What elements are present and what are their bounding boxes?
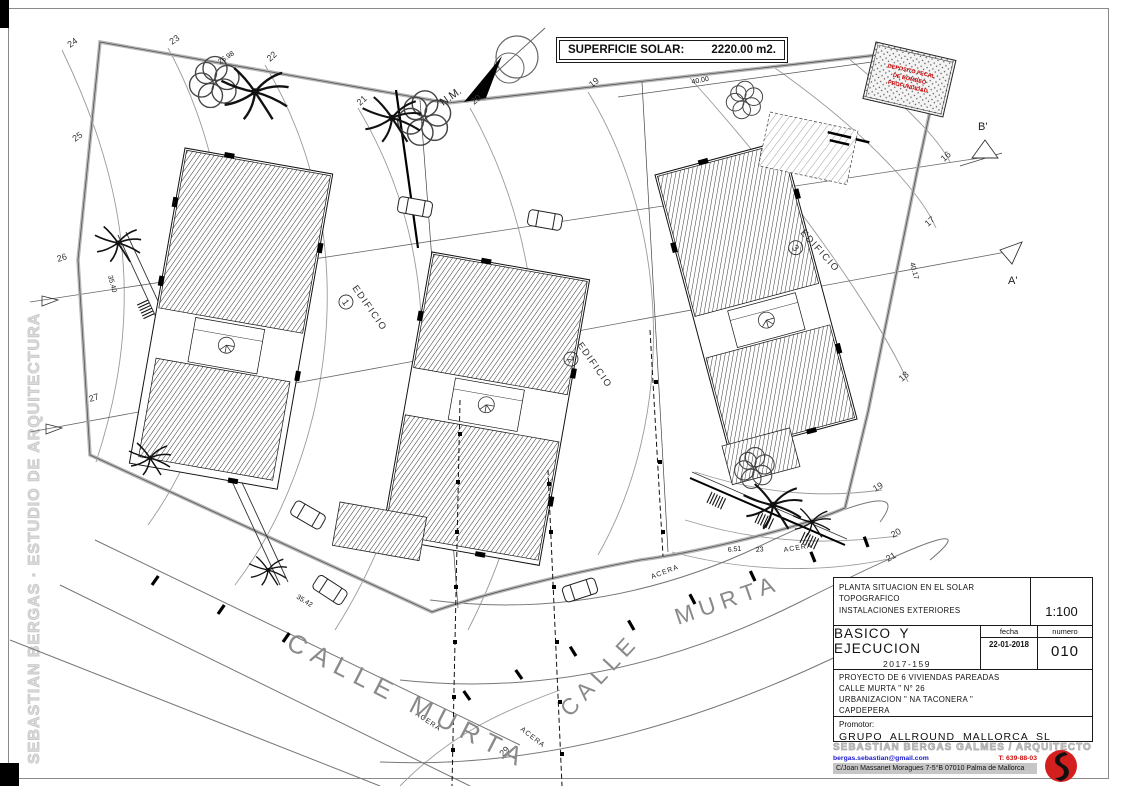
promotor-label: Promotor: — [839, 720, 1087, 729]
dimension-label: 23 — [755, 546, 764, 554]
architect-stamp: SEBASTIAN BERGAS GALMES / ARQUITECTO ber… — [833, 742, 1095, 784]
dimension-label: 35.40 — [106, 275, 117, 294]
acera-label: ACERA — [783, 543, 813, 554]
architect-email: bergas.sebastian@gmail.com — [833, 755, 929, 762]
drawing-sheet: SEBASTIAN BERGAS · ESTUDIO DE ARQUITECTU… — [0, 0, 1125, 786]
contour-label: 27 — [88, 391, 101, 404]
dimension-label: 6.51 — [727, 546, 741, 554]
dimension-label: 35.42 — [295, 594, 314, 609]
contour-label: 25 — [70, 130, 84, 144]
architect-address: C/Joan Massanet Moragues 7-5°B 07010 Pal… — [833, 763, 1037, 774]
project-line: URBANIZACION " NA TACONERA " — [839, 695, 1087, 706]
contour-label: 26 — [56, 251, 69, 264]
north-compass-icon: N.M. — [438, 28, 545, 108]
title-block-project-row: PROYECTO DE 6 VIVIENDAS PAREADAS CALLE M… — [834, 670, 1092, 717]
building-2-label: EDIFICIO — [575, 340, 615, 390]
drawing-title-line: INSTALACIONES EXTERIORES — [839, 605, 1025, 616]
contour-label: 16 — [939, 149, 953, 163]
contour-label: 17 — [923, 214, 937, 228]
title-block: PLANTA SITUACION EN EL SOLAR TOPOGRAFICO… — [833, 577, 1093, 742]
fecha-label: fecha — [981, 626, 1037, 638]
street-name-murta: MURTA — [671, 569, 783, 629]
section-label-b: B' — [978, 121, 987, 133]
north-label: N.M. — [438, 85, 464, 108]
numero-label: numero — [1038, 626, 1092, 638]
project-line: PROYECTO DE 6 VIVIENDAS PAREADAS — [839, 673, 1087, 684]
architect-phone: T: 639-88-03 — [998, 755, 1037, 762]
contour-label: 19 — [871, 480, 885, 494]
contour-label: 21 — [884, 550, 898, 564]
contour-label: 22 — [265, 49, 279, 63]
project-line: CAPDEPERA — [839, 706, 1087, 717]
contour-label: 23 — [167, 33, 181, 47]
section-marker-a: A' — [1000, 242, 1022, 287]
street-name-calle: CALLE — [555, 628, 644, 721]
project-line: CALLE MURTA " N° 26 — [839, 684, 1087, 695]
contour-label: 24 — [65, 36, 79, 50]
title-block-phase-row: BASICO Y EJECUCION 2017-159 fecha 22-01-… — [834, 626, 1092, 670]
deposit-box: DEPOSITO FECAL DE BOMBEO PROFUNDIDAD — [863, 42, 956, 117]
drawing-title-line: PLANTA SITUACION EN EL SOLAR — [839, 582, 1025, 593]
drawing-title-line: TOPOGRAFICO — [839, 593, 1025, 604]
site-area-label: SUPERFICIE SOLAR: — [568, 44, 684, 56]
acera-label: ACERA — [650, 564, 680, 581]
contour-label: 20 — [889, 526, 903, 540]
building-1-label: EDIFICIO — [350, 283, 390, 333]
building-3 — [651, 137, 860, 456]
street-names: CALLE MURTA CALLE MURTA — [282, 569, 783, 774]
street-name-calle-murta: CALLE MURTA — [282, 627, 534, 775]
architect-logo-icon — [1043, 748, 1079, 786]
contour-label: 18 — [897, 369, 911, 383]
title-block-description-row: PLANTA SITUACION EN EL SOLAR TOPOGRAFICO… — [834, 578, 1092, 626]
dimension-label: 40.17 — [908, 262, 919, 281]
site-area-box: SUPERFICIE SOLAR: 2220.00 m2. — [556, 37, 788, 63]
plot-division-line — [642, 82, 668, 552]
contour-label: 21 — [355, 93, 369, 107]
fecha-value: 22-01-2018 — [981, 638, 1037, 649]
sheet-number: 010 — [1038, 638, 1092, 660]
section-label-a: A' — [1008, 275, 1017, 287]
project-code: 2017-159 — [883, 659, 931, 669]
site-area-value: 2220.00 m2. — [711, 44, 776, 56]
drawing-scale: 1:100 — [1030, 578, 1092, 625]
project-phase: BASICO Y EJECUCION — [834, 626, 980, 656]
building-1 — [126, 145, 336, 492]
section-marker-b: B' — [960, 121, 1002, 166]
